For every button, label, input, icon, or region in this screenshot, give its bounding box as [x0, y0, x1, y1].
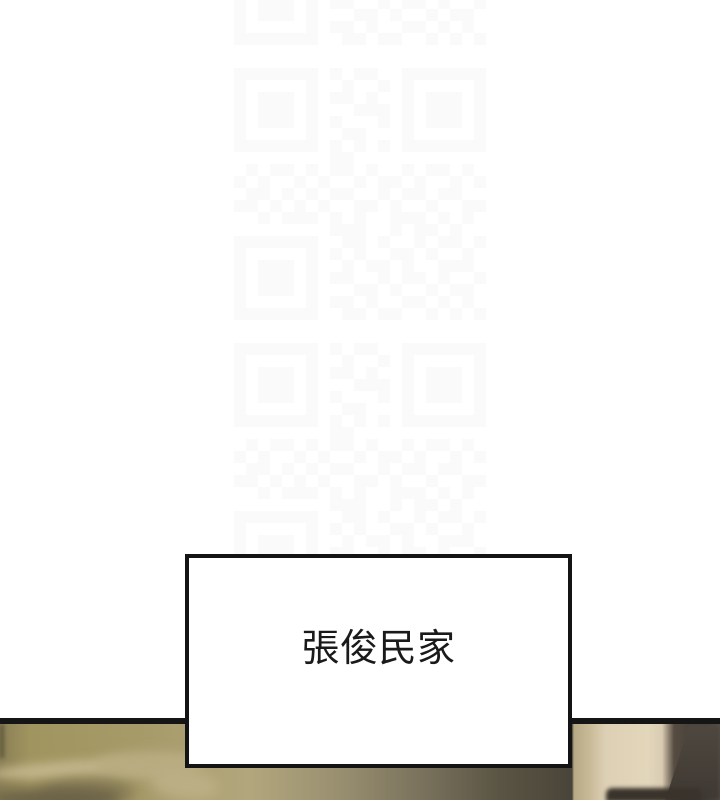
caption-box: 張俊民家	[185, 554, 572, 768]
qr-code-watermark-icon	[234, 0, 486, 45]
photo-left-edge-shadow	[0, 724, 4, 758]
caption-text: 張俊民家	[301, 630, 455, 668]
photo-object-dark	[606, 788, 702, 800]
qr-code-watermark-icon	[234, 68, 486, 320]
comic-page: 張俊民家	[0, 0, 720, 800]
